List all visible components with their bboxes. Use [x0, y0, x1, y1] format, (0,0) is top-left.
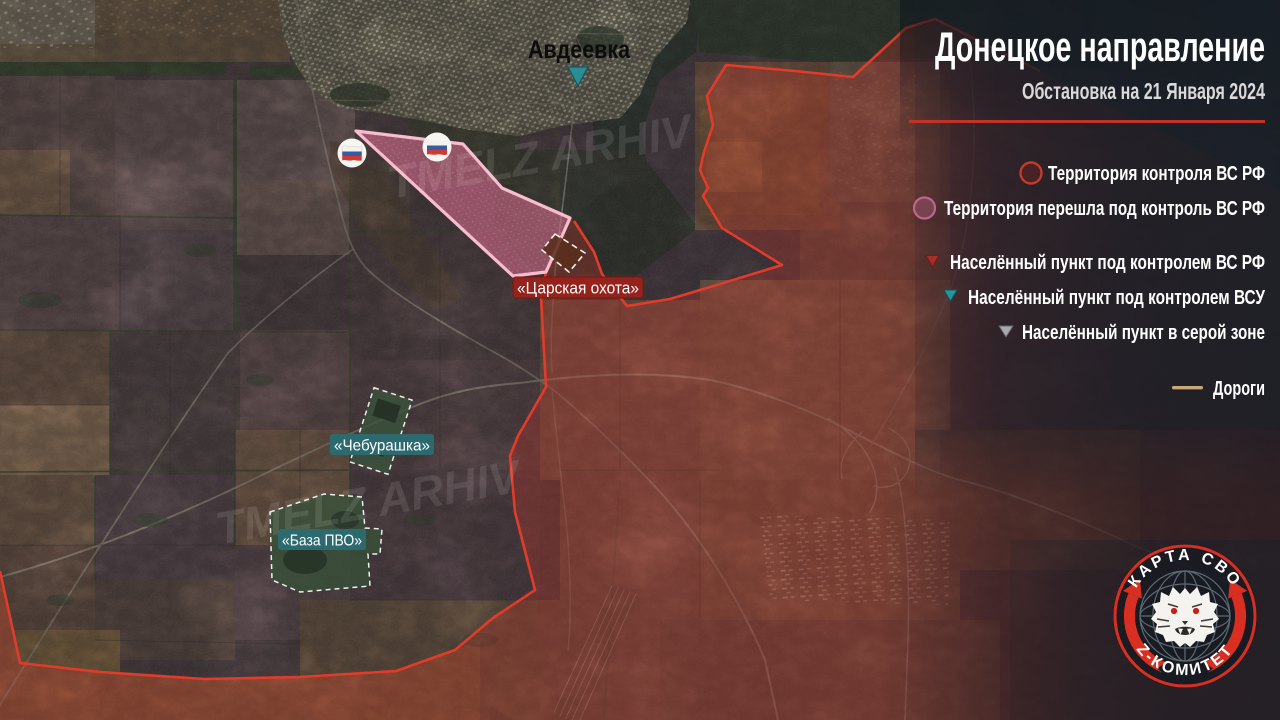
svg-text:Территория перешла под контрол: Территория перешла под контроль ВС РФ [944, 198, 1265, 220]
svg-text:Донецкое направление: Донецкое направление [935, 23, 1265, 70]
svg-text:«Чебурашка»: «Чебурашка» [334, 438, 430, 455]
svg-text:«Царская охота»: «Царская охота» [517, 279, 639, 298]
svg-text:Территория контроля ВС РФ: Территория контроля ВС РФ [1048, 163, 1265, 185]
svg-text:Населённый пункт под контролем: Населённый пункт под контролем ВСУ [968, 287, 1265, 309]
svg-text:Населённый пункт в серой зоне: Населённый пункт в серой зоне [1022, 322, 1265, 344]
svg-text:Авдеевка: Авдеевка [528, 36, 631, 64]
svg-text:Населённый пункт под контролем: Населённый пункт под контролем ВС РФ [950, 252, 1265, 274]
svg-text:Дороги: Дороги [1213, 378, 1265, 400]
svg-text:«База ПВО»: «База ПВО» [282, 533, 362, 550]
svg-text:Обстановка на 21 Января 2024: Обстановка на 21 Января 2024 [1022, 78, 1265, 104]
